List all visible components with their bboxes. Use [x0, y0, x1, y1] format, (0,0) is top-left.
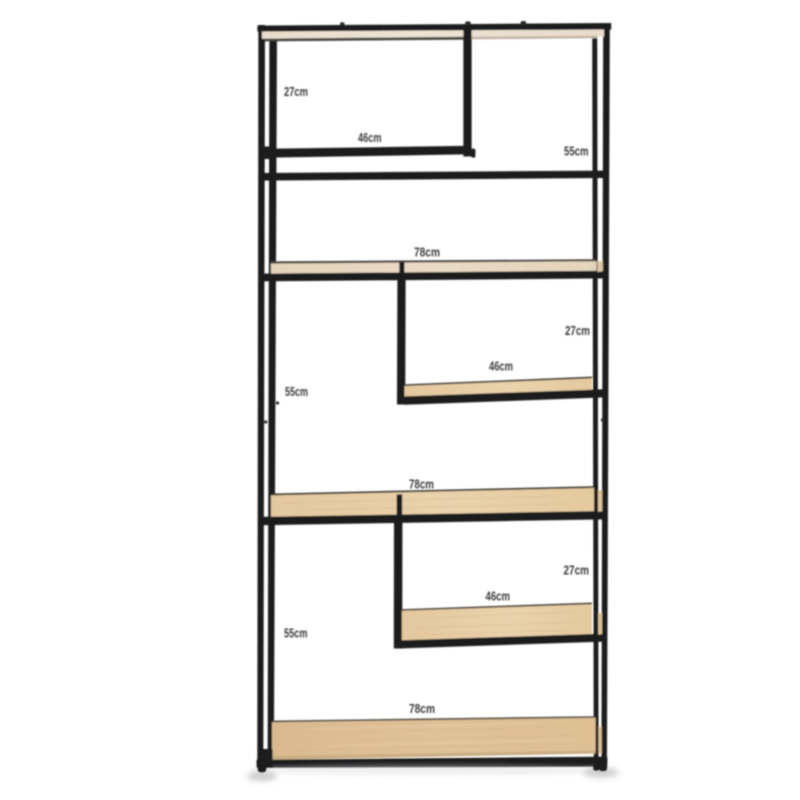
- svg-text:27cm: 27cm: [564, 563, 590, 578]
- svg-text:78cm: 78cm: [414, 245, 440, 260]
- svg-text:46cm: 46cm: [358, 130, 382, 145]
- svg-text:27cm: 27cm: [565, 323, 590, 338]
- svg-text:27cm: 27cm: [284, 84, 308, 99]
- svg-text:78cm: 78cm: [409, 477, 434, 492]
- svg-text:55cm: 55cm: [285, 384, 308, 399]
- svg-text:78cm: 78cm: [409, 701, 435, 716]
- svg-text:55cm: 55cm: [564, 144, 589, 159]
- svg-text:46cm: 46cm: [486, 589, 511, 604]
- svg-text:55cm: 55cm: [284, 626, 308, 641]
- svg-text:46cm: 46cm: [489, 359, 513, 374]
